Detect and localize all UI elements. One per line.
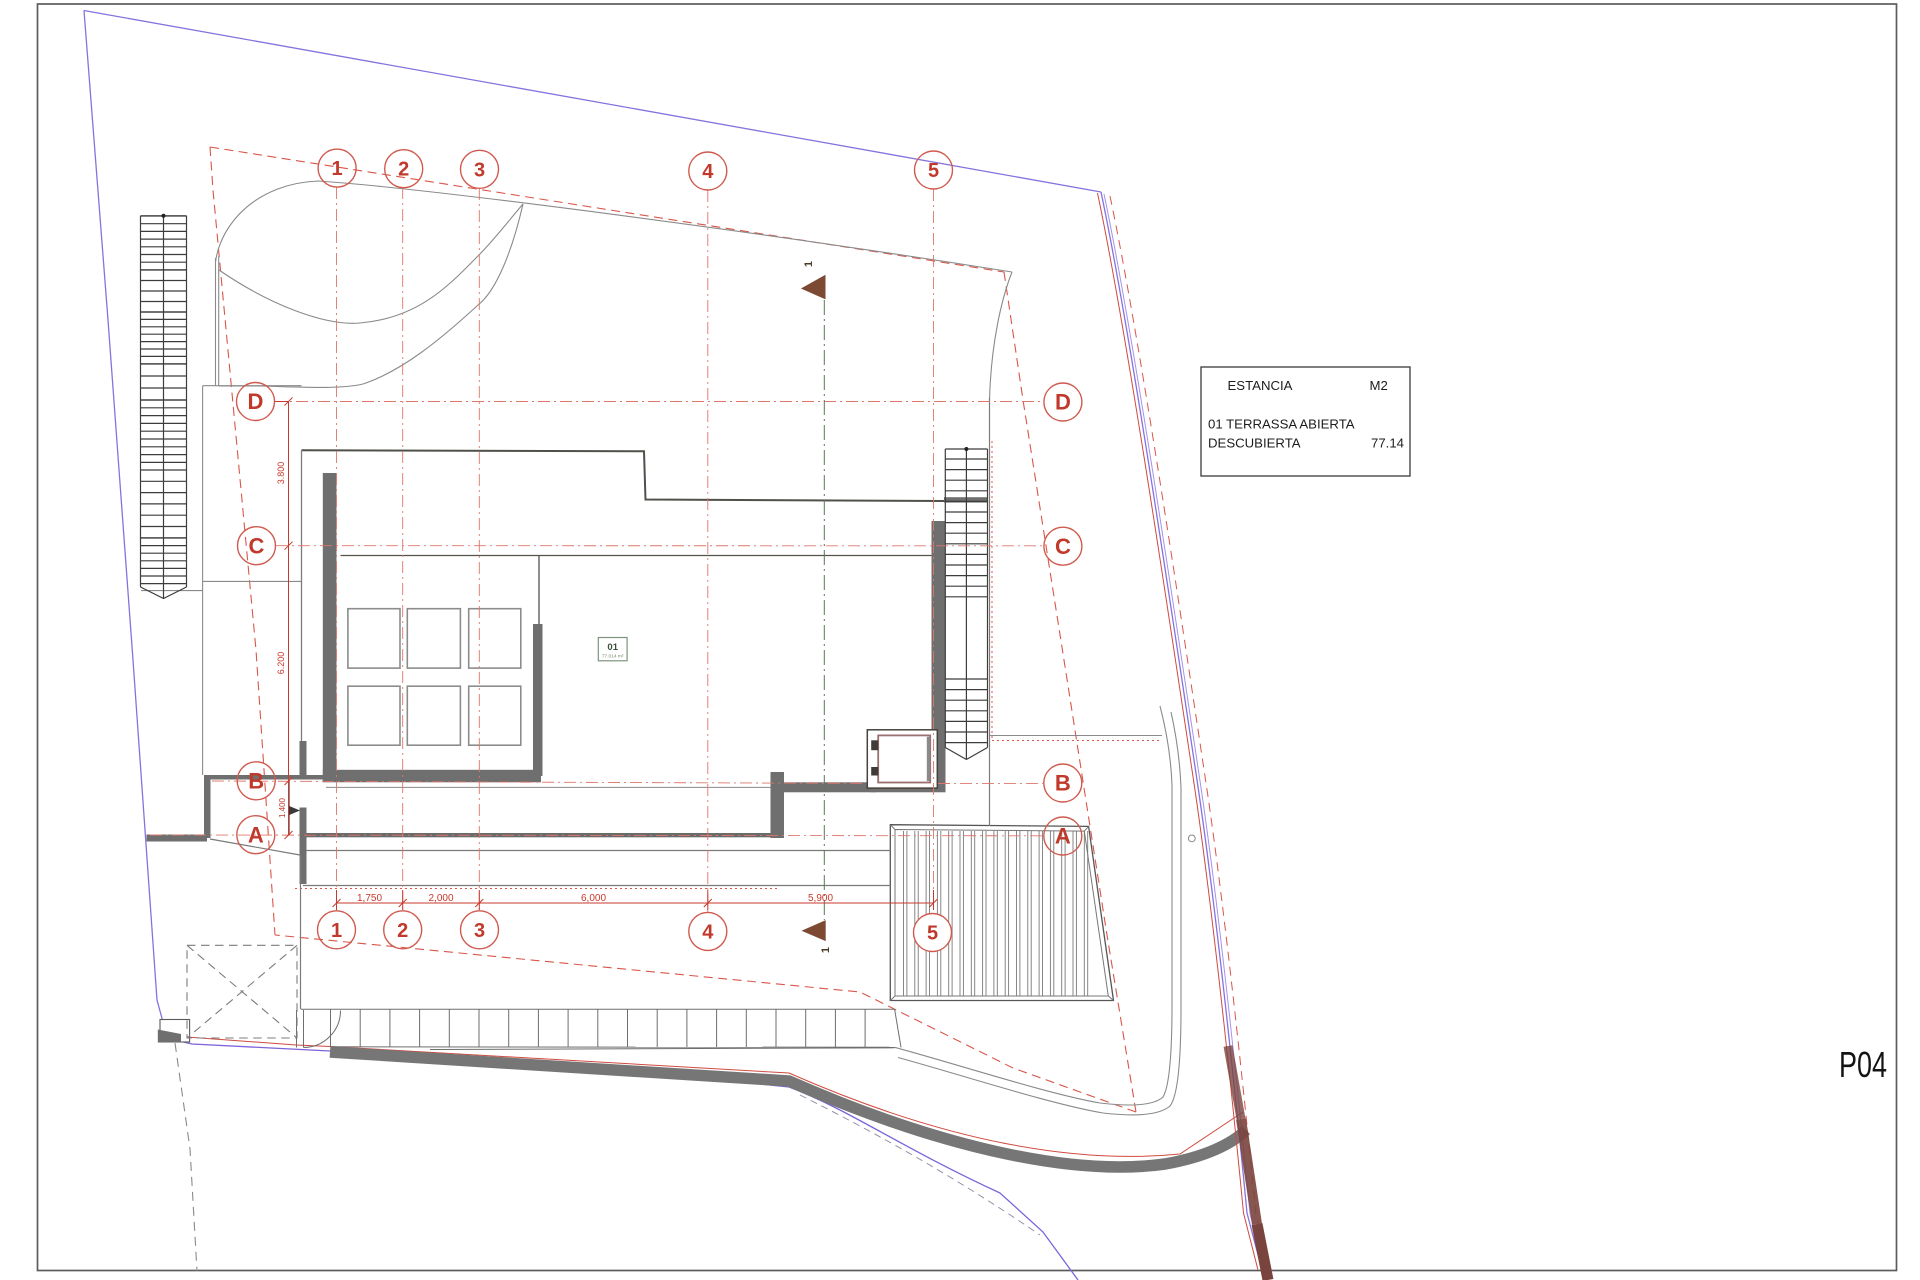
svg-text:C: C [1055,534,1071,559]
svg-text:3: 3 [474,159,485,181]
svg-text:M2: M2 [1370,378,1388,393]
svg-text:C: C [249,533,265,558]
svg-text:4: 4 [702,161,714,183]
svg-text:D: D [1055,390,1071,415]
svg-text:A: A [1055,824,1071,849]
svg-text:5: 5 [928,160,939,182]
svg-text:01 TERRASSA ABIERTA: 01 TERRASSA ABIERTA [1208,417,1355,432]
svg-text:01: 01 [607,642,618,653]
svg-text:1.400: 1.400 [278,797,287,818]
svg-text:6,000: 6,000 [581,893,606,904]
svg-text:B: B [248,769,264,794]
svg-text:5: 5 [927,923,938,945]
svg-text:1: 1 [820,947,832,953]
svg-text:77.014 m²: 77.014 m² [602,654,624,660]
svg-text:6.200: 6.200 [276,652,286,675]
svg-text:A: A [248,822,264,847]
svg-text:4: 4 [702,921,714,943]
svg-text:1: 1 [331,920,342,942]
svg-text:DESCUBIERTA: DESCUBIERTA [1208,436,1301,451]
svg-text:3: 3 [474,920,485,942]
svg-text:D: D [248,389,264,414]
svg-text:3.800: 3.800 [276,462,286,485]
svg-text:2: 2 [398,159,409,181]
svg-text:2,000: 2,000 [428,893,453,904]
svg-text:B: B [1055,771,1071,796]
svg-text:1,750: 1,750 [357,893,382,904]
svg-text:1: 1 [803,261,815,267]
svg-text:P04: P04 [1839,1044,1887,1085]
svg-text:2: 2 [397,920,408,942]
svg-text:ESTANCIA: ESTANCIA [1228,378,1293,393]
svg-text:5,900: 5,900 [808,893,833,904]
svg-text:77.14: 77.14 [1371,436,1404,451]
svg-text:1: 1 [332,158,343,180]
